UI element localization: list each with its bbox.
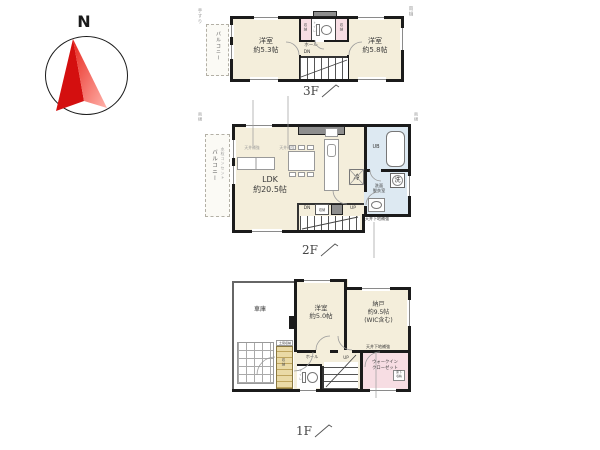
f1-room-label: 洋室 約5.0帖: [296, 304, 346, 321]
f1-entrance-storage-label: 収納: [282, 358, 287, 367]
f1-pilaster: [289, 316, 295, 329]
f2-dn-label: DN: [300, 206, 314, 212]
f3-stairs: [300, 58, 348, 79]
window: [407, 300, 412, 326]
kitchen-sink-icon: [327, 144, 336, 157]
vanity-sink-icon: [371, 201, 382, 209]
window: [229, 25, 234, 37]
f2-fridge-label: 冷: [349, 173, 364, 181]
f3-door-gap-toilet: [315, 40, 324, 42]
f3-balcony: バルコニー: [206, 24, 229, 76]
window: [250, 77, 278, 82]
f2-gray-duct-box: [331, 204, 343, 215]
f3-closet-left: 収納: [301, 19, 312, 40]
chair-icon: [298, 145, 305, 150]
window: [231, 140, 236, 158]
f3-wall-closet-bottom: [301, 40, 347, 42]
dining-table-icon: [288, 151, 315, 171]
f1-wall-mid: [344, 290, 347, 352]
f2-ceiling-note-2: 天井補強: [276, 146, 298, 151]
f1-garage-line-top: [232, 281, 294, 283]
window: [370, 388, 396, 393]
compass-circle: [45, 36, 128, 115]
f3-toilet-bowl-icon: [321, 25, 332, 35]
window: [231, 166, 236, 184]
f1-garage-label: 車庫: [246, 306, 274, 314]
chair-icon: [298, 172, 305, 177]
window: [252, 229, 282, 234]
f1-toilet-bowl-icon: [307, 372, 318, 383]
f1-entrance-porch-tiles: [237, 342, 274, 384]
f3-room-right-label: 洋室 約5.8帖: [348, 37, 402, 55]
window: [246, 123, 272, 128]
kitchen-stove-icon: [325, 128, 338, 137]
f3-door-gap-right: [347, 42, 349, 55]
chair-icon: [307, 145, 314, 150]
f2-stairs: [300, 216, 360, 230]
f3-toilet-tank-icon: [316, 24, 320, 36]
f2-floor-label: 2F: [302, 243, 318, 257]
f1-storage-room-label: 納戸 約9.5帖 (WIC含む): [350, 301, 407, 324]
f1-floor-storage-label: 床下 収納: [393, 371, 405, 378]
f2-washer-label: 洗: [390, 177, 405, 185]
f2-ceiling-note-1: 天井補強: [241, 146, 263, 151]
window: [300, 388, 316, 393]
f3-closet-right-label: 収納: [340, 23, 345, 32]
f1-entrance-storage-shelves: [276, 346, 293, 389]
f3-hall-label: ホール: [300, 43, 322, 49]
f1-door-gap-room: [316, 350, 330, 353]
window: [400, 28, 405, 50]
f3-dn-label: DN: [300, 50, 314, 56]
f3-door-gap-left: [299, 42, 301, 55]
window: [407, 176, 412, 196]
window: [254, 15, 278, 20]
window: [304, 278, 330, 283]
f2-closet-label: 収納: [315, 208, 329, 212]
f1-hall-label: ホール: [300, 354, 324, 359]
f3-balcony-label: バルコニー: [215, 31, 222, 61]
f1-wall-toilet-top: [294, 364, 322, 366]
f2-balcony-note: 水栓コンセント: [221, 147, 226, 181]
window: [229, 45, 234, 59]
f2-up-label: UP: [346, 206, 360, 212]
floor-plan-canvas: N バルコニー 手すり 雨樋 収納 収納 トイレ ホール DN 洋室 約5.3帖…: [0, 0, 600, 450]
window: [358, 77, 386, 82]
f1-stairs: [324, 362, 358, 389]
f3-closet-left-label: 収納: [304, 23, 309, 32]
f1-up-label: UP: [338, 355, 354, 360]
window: [362, 286, 390, 291]
f3-vent-strip: [313, 11, 337, 17]
f2-ceiling-reinforce-label: 天井下地補強: [360, 216, 394, 221]
f1-toilet-tank-icon: [302, 372, 306, 383]
f1-wall-hall-top: [294, 350, 411, 353]
f2-wall-right: [408, 124, 411, 217]
f2-door-gap-washroom: [364, 192, 367, 206]
sofa-icon: [237, 157, 275, 170]
f2-balcony: バルコニー 水栓コンセント: [205, 134, 230, 217]
f1-label-slash: [315, 425, 332, 437]
f2-ldk-label: LDK 約20.5帖: [240, 175, 300, 196]
compass-north-label: N: [74, 12, 94, 33]
window: [358, 15, 384, 20]
f1-floor-label: 1F: [296, 424, 312, 438]
f3-room-left-label: 洋室 約5.3帖: [236, 37, 296, 55]
f3-label-slash: [322, 85, 339, 97]
f1-door-gap-storage: [338, 350, 352, 353]
bathtub-icon: [386, 131, 405, 167]
f2-gutter-note-left: 雨樋: [197, 112, 203, 122]
f3-closet-right: 収納: [335, 19, 347, 40]
f2-label-slash: [321, 244, 338, 256]
f2-door-gap-bath: [370, 169, 381, 172]
chair-icon: [307, 172, 314, 177]
f1-ceiling-reinforce-label: 天井下地補強: [360, 344, 396, 349]
chair-icon: [289, 172, 296, 177]
f1-wall-wic-left: [360, 352, 363, 392]
f3-gutter-note: 雨樋: [407, 6, 413, 17]
f1-door-gap-entrance: [294, 352, 297, 371]
f2-balcony-label: バルコニー: [210, 149, 218, 182]
f2-wall-stairhall-v: [297, 203, 299, 230]
f2-unit-bath-label: UB: [368, 144, 384, 151]
f3-handrail-note: 手すり: [196, 8, 202, 25]
f3-floor-label: 3F: [303, 84, 319, 98]
f1-garage-line-left: [232, 281, 234, 389]
f2-gutter-note-right: 雨樋: [413, 112, 419, 122]
f2-washroom-label: 洗面 脱衣室: [368, 183, 390, 194]
